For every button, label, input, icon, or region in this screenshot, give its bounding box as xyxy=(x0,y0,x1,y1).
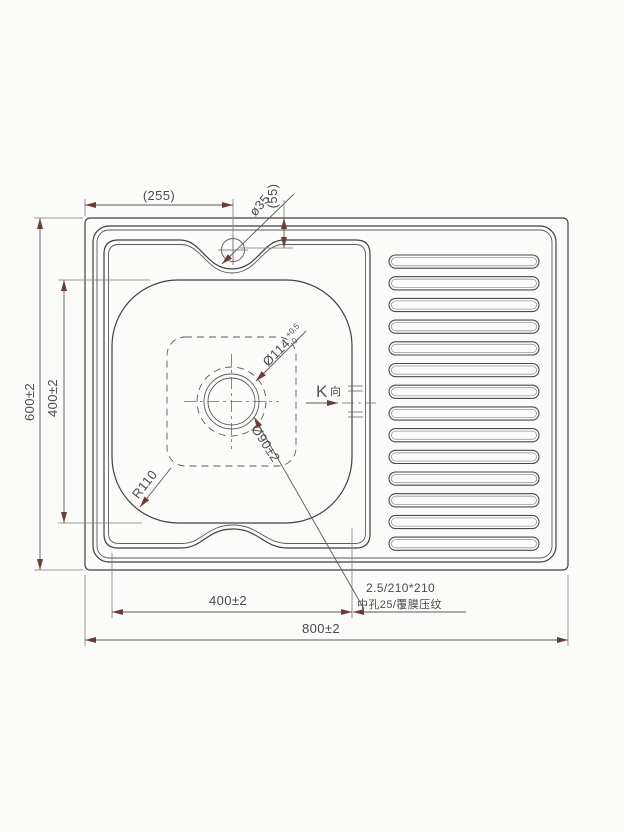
drainboard-rib-inner xyxy=(392,496,537,504)
drainboard-rib-inner xyxy=(392,431,537,439)
drainboard-rib-inner xyxy=(392,475,537,483)
dim-drain-dia-group: Ø114 +0.5 0 xyxy=(259,321,308,370)
drainboard-rib-inner xyxy=(392,301,537,309)
dim-overall-height: 600±2 xyxy=(22,383,37,421)
drainboard-rib xyxy=(389,407,539,420)
drainboard-rib xyxy=(389,472,539,485)
sink-technical-drawing: (255) ø35 (55) 600±2 400±2 400±2 800±2 R… xyxy=(0,0,624,832)
drainboard-rib-inner xyxy=(392,518,537,526)
drainboard-rib-inner xyxy=(392,540,537,548)
dim-drain-tol-lower: 0 xyxy=(290,336,300,346)
dim-top-width: (255) xyxy=(143,188,175,203)
drainboard-rib-inner xyxy=(392,258,537,266)
drainboard-rib xyxy=(389,494,539,507)
note-line2: 中孔25/覆膜压纹 xyxy=(357,597,442,611)
dim-drain-opening: Ø90±2 xyxy=(248,422,283,465)
drainboard-rib xyxy=(389,385,539,398)
drainboard-rib xyxy=(389,429,539,442)
dim-drain-dia: Ø114 xyxy=(260,336,294,370)
drainboard-rib-inner xyxy=(392,453,537,461)
view-char: 向 xyxy=(330,384,341,398)
drainboard-rib xyxy=(389,537,539,550)
drainboard-rib-inner xyxy=(392,323,537,331)
drainboard-ribs xyxy=(389,255,539,550)
drainboard-rib-inner xyxy=(392,366,537,374)
drainboard-rib xyxy=(389,277,539,290)
dim-faucet-offset: (55) xyxy=(265,184,280,209)
drainboard-rib xyxy=(389,515,539,528)
dim-bowl-width: 400±2 xyxy=(209,593,247,608)
drawing-canvas: (255) ø35 (55) 600±2 400±2 400±2 800±2 R… xyxy=(0,0,624,832)
drainboard-rib-inner xyxy=(392,388,537,396)
drainboard-rib xyxy=(389,320,539,333)
drainboard-rib-inner xyxy=(392,344,537,352)
drainboard-rib-inner xyxy=(392,409,537,417)
view-letter: K xyxy=(316,382,328,401)
drainboard-rib xyxy=(389,364,539,377)
drainboard-rib-inner xyxy=(392,279,537,287)
drainboard-rib xyxy=(389,342,539,355)
drainboard-rib xyxy=(389,298,539,311)
drainboard-rib xyxy=(389,255,539,268)
dim-corner-radius: R110 xyxy=(129,467,160,501)
dim-bowl-height: 400±2 xyxy=(45,379,60,417)
dim-overall-width: 800±2 xyxy=(302,621,340,636)
drainboard-rib xyxy=(389,450,539,463)
note-line1: 2.5/210*210 xyxy=(366,581,435,595)
